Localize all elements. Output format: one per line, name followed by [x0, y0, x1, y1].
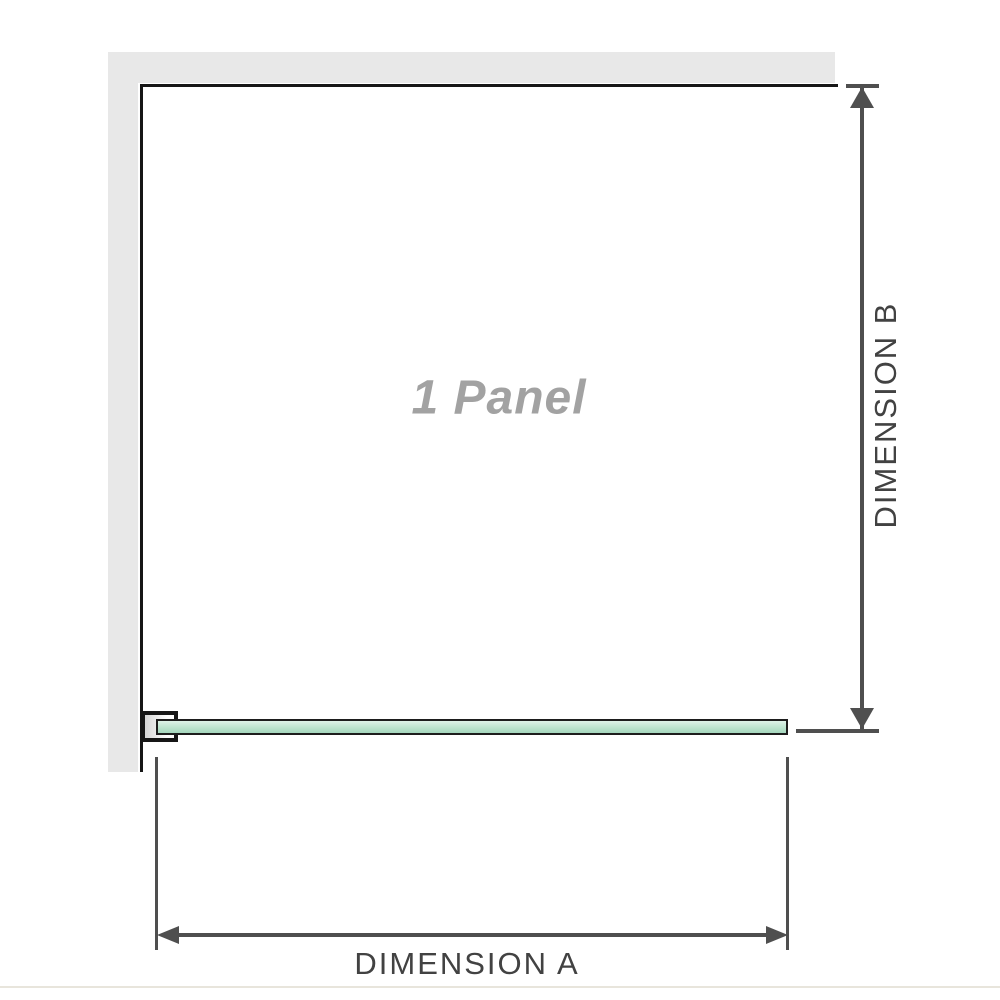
dimension-b-label: DIMENSION B	[868, 302, 904, 529]
dimension-b-line	[860, 88, 864, 729]
dimension-a-label: DIMENSION A	[354, 946, 579, 982]
arrow-right-icon	[766, 926, 788, 944]
panel-outline	[140, 84, 838, 772]
wall-top-segment	[108, 52, 835, 83]
dimension-a-left-extension	[155, 757, 158, 950]
arrow-left-icon	[157, 926, 179, 944]
panel-diagram: 1 Panel DIMENSION B DIMENSION A	[0, 0, 1000, 1000]
arrow-up-icon	[850, 87, 874, 108]
arrow-down-icon	[850, 708, 874, 729]
panel-count-label: 1 Panel	[411, 371, 586, 426]
dimension-b-bottom-tick	[796, 729, 879, 733]
wall-left-segment	[108, 52, 138, 772]
dimension-a-right-extension	[786, 757, 789, 950]
dimension-a-line	[168, 933, 776, 937]
photo-edge-line	[0, 986, 1000, 988]
glass-panel-bar	[156, 719, 788, 735]
